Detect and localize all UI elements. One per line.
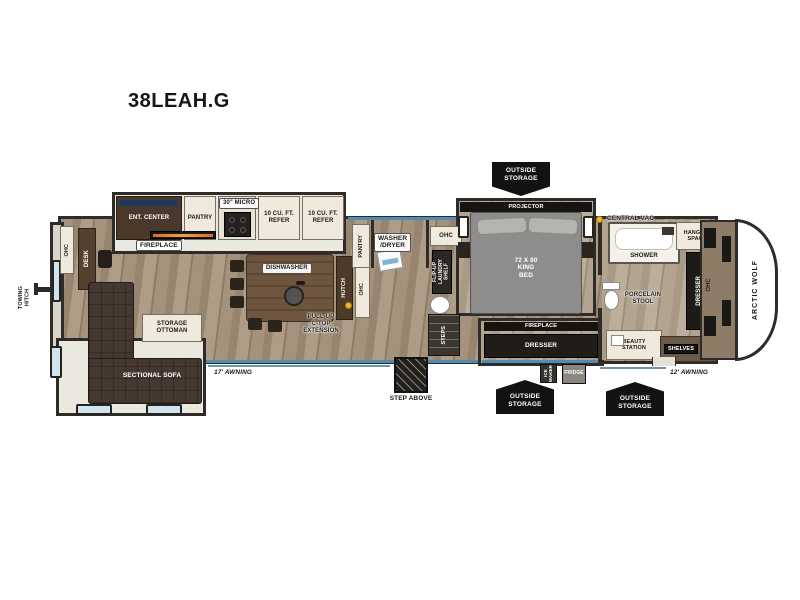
bedroom-window-right (583, 216, 594, 238)
ohc-island-label: OHC (359, 283, 365, 296)
outside-storage-badge-right: OUTSIDE STORAGE (606, 382, 664, 416)
front-cabinet-hatch (704, 316, 716, 336)
sectional-sofa-bottom-arm (88, 358, 202, 404)
bedroom-fireplace-label: FIREPLACE (525, 323, 557, 329)
ohc-island-cabinet: OHC (355, 260, 370, 318)
laundry-basin (430, 296, 450, 314)
front-cabinet-hatch (722, 236, 731, 262)
storage-ottoman: STORAGE OTTOMAN (142, 314, 202, 342)
front-cap: ARCTIC WOLF (735, 219, 778, 361)
front-entry-door-gap (652, 357, 676, 366)
storage-ottoman-label: STORAGE OTTOMAN (157, 321, 188, 335)
shower-label: SHOWER (610, 253, 678, 260)
sofa-slide-window-bottom-1 (76, 404, 112, 415)
sofa-slide-window-bottom-2 (146, 404, 182, 415)
ohc-rear-cabinet: OHC (60, 226, 74, 274)
dining-chair (230, 260, 244, 272)
pantry-kitchen-label: PANTRY (188, 215, 213, 222)
outside-storage-top-label: OUTSIDE STORAGE (504, 167, 537, 183)
living-fireplace-label: FIREPLACE (136, 240, 182, 251)
steps-label: STEPS (441, 326, 447, 345)
outside-storage-left-label: OUTSIDE STORAGE (508, 393, 541, 409)
bedroom-window-left (458, 216, 469, 238)
bedroom-fireplace: FIREPLACE (484, 322, 598, 331)
pantry-laundry: PANTRY (352, 224, 370, 268)
step-above-label: STEP ABOVE (380, 395, 442, 402)
outside-storage-right-label: OUTSIDE STORAGE (618, 395, 651, 411)
ohc-front-label: OHC (706, 278, 713, 292)
central-vac-label: CENTRAL VAC (607, 215, 654, 222)
outside-storage-badge-left: OUTSIDE STORAGE (496, 380, 554, 414)
king-bed-label: 72 X 80 KING BED (471, 257, 581, 279)
dining-chair (230, 296, 244, 308)
burner (229, 227, 235, 233)
pillow-right (528, 217, 579, 236)
front-cabinet-hatch (722, 300, 731, 326)
laundry-wall-right (426, 220, 429, 268)
dishwasher-label: DISHWASHER (262, 263, 312, 274)
microwave-label: 30" MICRO (219, 198, 259, 209)
rv-floorplan-canvas: 38LEAH.G TOWING HITCH OHC ARCTIC WOLF EN… (0, 0, 800, 600)
front-awning-line (600, 367, 666, 369)
sectional-sofa-label: SECTIONAL SOFA (104, 372, 200, 379)
projector-label: PROJECTOR (508, 204, 543, 210)
porcelain-stool-label: PORCELAIN STOOL (620, 292, 666, 306)
pantry-laundry-label: PANTRY (358, 235, 364, 258)
beauty-station: BEAUTY STATION (606, 330, 662, 360)
desk-label: DESK (84, 250, 91, 267)
dining-chair (230, 278, 244, 290)
washer-dryer-label: WASHER /DRYER (374, 233, 411, 252)
shelves-label: SHELVES (664, 344, 698, 354)
bedroom-dresser: DRESSER (484, 334, 598, 358)
countertop-extension-label: PULL-UP C-TOP EXTENSION (296, 314, 346, 335)
nightstand-left (458, 242, 470, 258)
flip-up-shelf-label: FLIP-UP LAUNDRY SHELF (433, 251, 450, 293)
fireplace-flame (153, 234, 213, 237)
hutch: HUTCH (336, 256, 353, 320)
brand-name-label: ARCTIC WOLF (752, 260, 760, 320)
burner (240, 217, 246, 223)
outside-fridge: FRIDGE (562, 364, 586, 384)
ice-maker-label: ICE MAKER (543, 365, 553, 382)
shower-head (662, 227, 674, 235)
burner (229, 217, 235, 223)
bathroom-wall-upper (598, 219, 602, 275)
slide-accent-strip (482, 360, 602, 363)
living-fireplace-hearth (150, 231, 216, 239)
refer-1-label: 10 CU. FT. REFER (264, 211, 294, 225)
outside-ice-maker: ICE MAKER (540, 364, 557, 383)
fridge-label: FRIDGE (564, 371, 584, 377)
burner (240, 227, 246, 233)
tv-screen (120, 200, 178, 206)
sofa-slide-window-left (50, 346, 62, 378)
toilet-bowl (604, 290, 619, 310)
rear-awning-label: 17' AWNING (214, 369, 252, 376)
projector-bar: PROJECTOR (460, 202, 592, 212)
body-accent-strip-mid (206, 360, 478, 363)
king-bed: 72 X 80 KING BED (470, 212, 582, 314)
entry-steps (394, 357, 428, 393)
central-vac-dot (596, 216, 603, 223)
body-accent-strip-top (348, 217, 456, 220)
nightstand-right (582, 242, 594, 258)
pillow-left (477, 217, 528, 236)
range-cooktop (224, 212, 251, 237)
dining-chair (268, 320, 282, 332)
front-cabinet-hatch (704, 228, 716, 248)
sink-faucet (296, 281, 305, 285)
bathroom-wall-lower (598, 308, 602, 364)
floorplan-model-title: 38LEAH.G (128, 90, 230, 113)
refrigerator-2: 10 CU. FT. REFER (302, 196, 344, 240)
ohc-rear-label: OHC (64, 244, 70, 257)
towing-hitch-stub (34, 283, 38, 295)
dining-chair (248, 318, 262, 330)
refer-2-label: 10 CU. FT. REFER (308, 211, 338, 225)
island-sink (284, 286, 304, 306)
ent-center-label: ENT. CENTER (129, 215, 169, 222)
towing-hitch-label: TOWING HITCH (18, 286, 31, 309)
flip-up-laundry-shelf: FLIP-UP LAUNDRY SHELF (432, 250, 452, 294)
toilet-tank (602, 282, 620, 290)
bedroom-dresser-label: DRESSER (525, 342, 557, 349)
hutch-label: HUTCH (341, 278, 347, 298)
ohc-laundry-label: OHC (439, 233, 453, 240)
beauty-station-sink (611, 335, 624, 346)
refrigerator-1: 10 CU. FT. REFER (258, 196, 300, 240)
shower: SHOWER (608, 222, 680, 264)
desk: DESK (78, 228, 96, 290)
beauty-station-label: BEAUTY STATION (622, 339, 646, 352)
central-vac-port-dot (345, 302, 352, 309)
front-awning-label: 12' AWNING (670, 369, 708, 376)
interior-steps: STEPS (428, 314, 460, 356)
washer-door-glass (382, 258, 399, 266)
rear-awning-line (208, 365, 390, 367)
desk-chair (98, 250, 112, 268)
outside-storage-badge-top: OUTSIDE STORAGE (492, 162, 550, 196)
towing-hitch-bar (38, 287, 50, 292)
